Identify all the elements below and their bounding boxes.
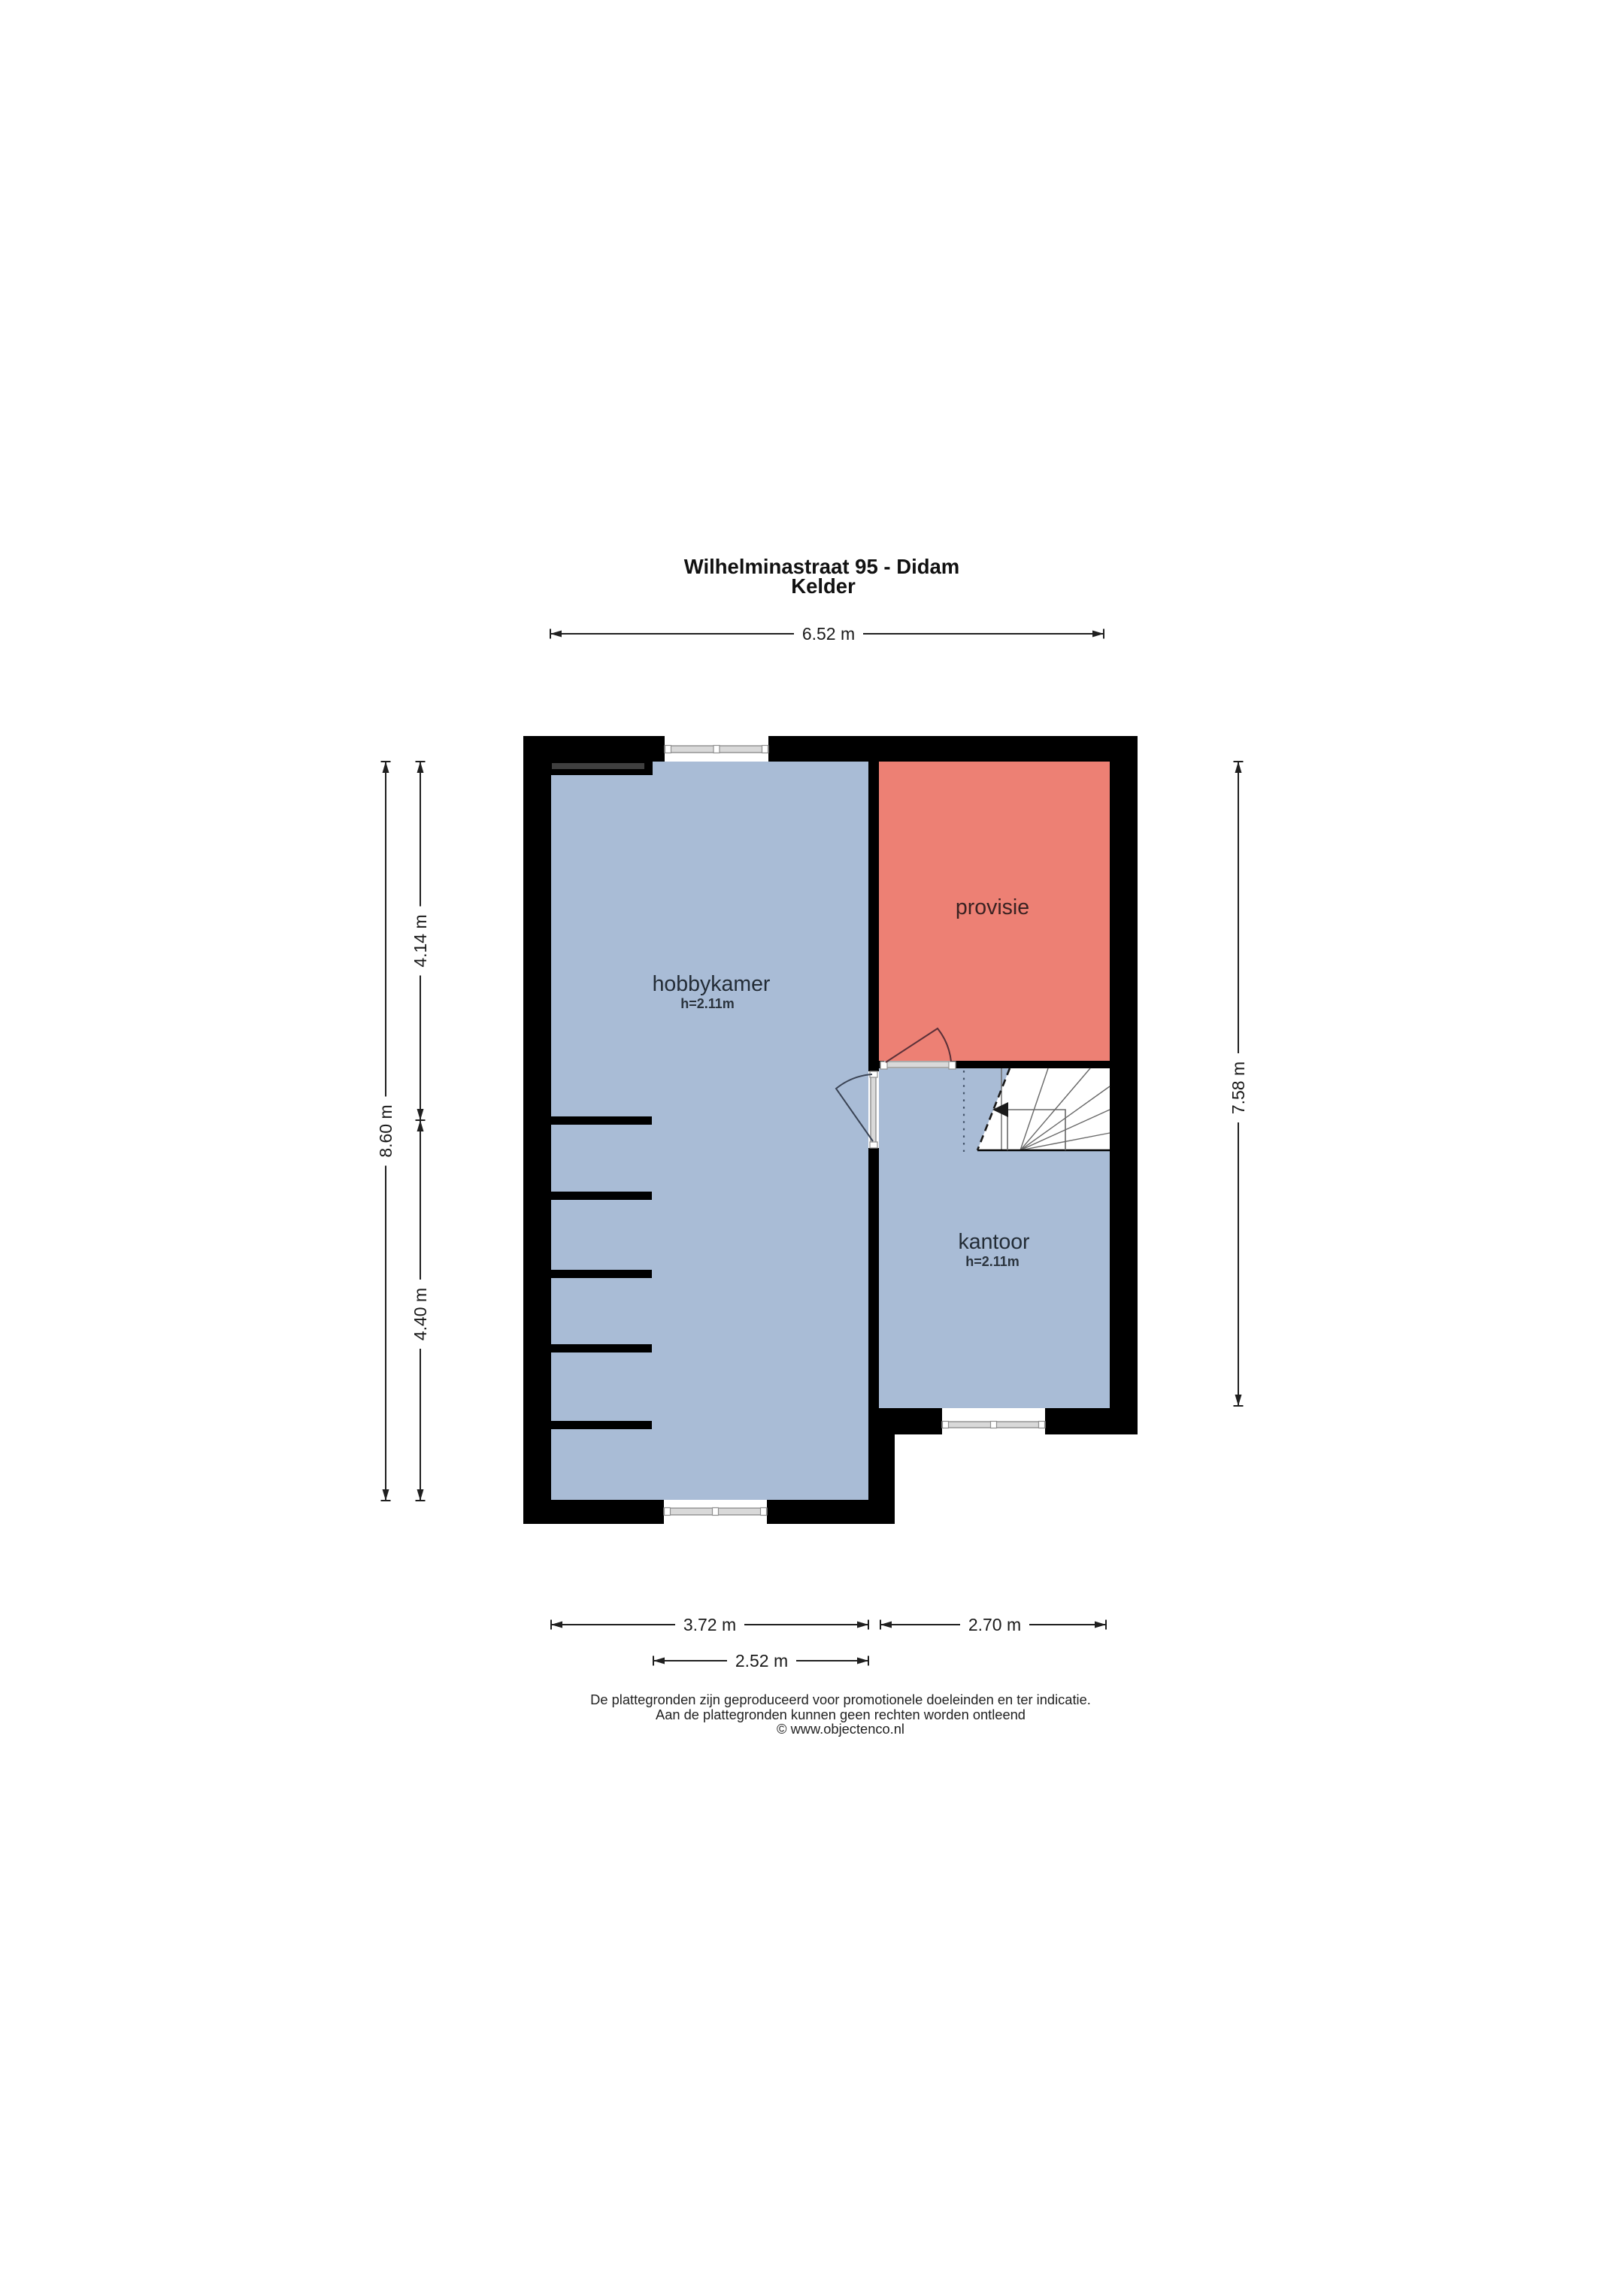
svg-text:8.60 m: 8.60 m <box>376 1104 395 1157</box>
svg-text:© www.objectenco.nl: © www.objectenco.nl <box>777 1721 904 1737</box>
svg-text:6.52 m: 6.52 m <box>802 624 855 644</box>
svg-text:7.58 m: 7.58 m <box>1229 1062 1248 1114</box>
svg-text:Kelder: Kelder <box>791 574 856 598</box>
svg-text:h=2.11m: h=2.11m <box>680 996 735 1011</box>
svg-text:2.52 m: 2.52 m <box>735 1651 788 1671</box>
svg-text:3.72 m: 3.72 m <box>683 1615 736 1634</box>
svg-text:De plattegronden zijn geproduc: De plattegronden zijn geproduceerd voor … <box>590 1692 1091 1707</box>
svg-text:hobbykamer: hobbykamer <box>653 972 771 996</box>
svg-text:kantoor: kantoor <box>958 1230 1030 1254</box>
svg-text:Aan de plattegronden kunnen ge: Aan de plattegronden kunnen geen rechten… <box>656 1707 1026 1722</box>
svg-text:2.70 m: 2.70 m <box>968 1615 1021 1634</box>
svg-text:provisie: provisie <box>956 895 1029 919</box>
svg-text:4.14 m: 4.14 m <box>411 914 430 967</box>
svg-text:h=2.11m: h=2.11m <box>965 1254 1020 1269</box>
svg-text:4.40 m: 4.40 m <box>411 1288 430 1340</box>
